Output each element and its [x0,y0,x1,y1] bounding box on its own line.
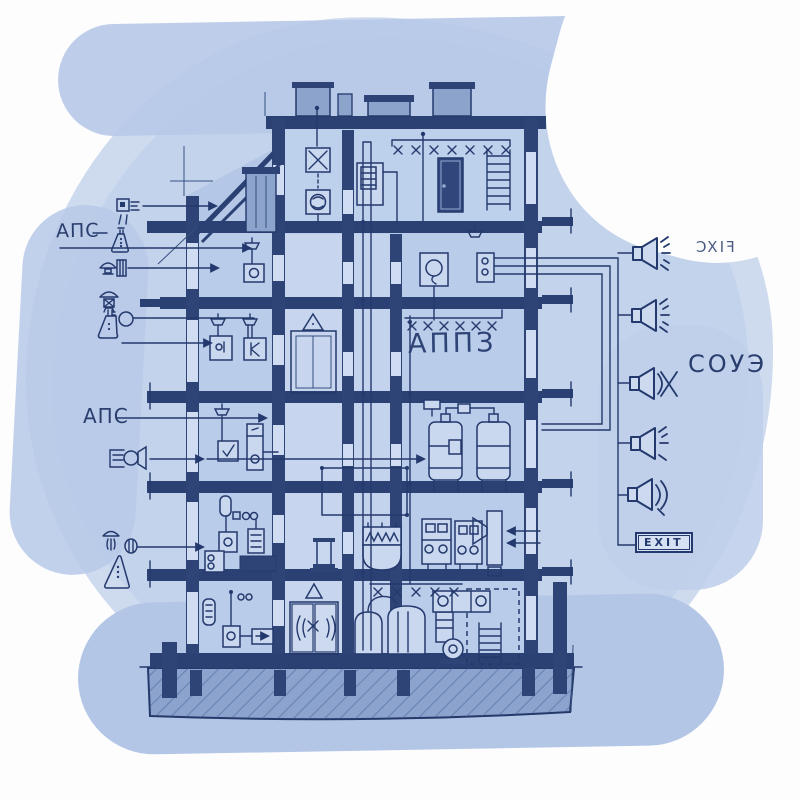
loudspeaker-rays-icon [631,427,668,460]
building-section-drawing [0,0,800,800]
label-appz: АППЗ [408,327,497,360]
loudspeaker-rays-icon [632,299,669,332]
roof-and-chimneys [265,82,475,116]
exit-sign: EXIT [635,532,693,553]
legend-icons [98,199,146,588]
water-tank [429,414,462,492]
door [438,158,463,212]
horn-sounder-icon [110,447,146,469]
coil-tank [363,523,401,570]
loudspeaker-crossed-waves-icon [630,368,677,399]
speakers [628,237,677,515]
label-aps-upper: АПС [56,220,100,243]
gauge-panel [433,591,490,612]
hydrant-mushroom-icon [100,260,126,276]
water-tank [477,414,510,492]
control-panel [422,519,451,570]
label-fix-mirrored: FIXC [694,238,735,256]
sprinkler-spray-icon [103,532,137,554]
blueprint-canvas: АПС АПС АППЗ FIXC СОУЭ EXIT [0,0,800,800]
label-aps-lower: АПС [83,404,129,428]
loudspeaker-rays-icon [633,237,670,270]
exit-sign-text: EXIT [638,535,690,550]
sounder-box [420,253,448,286]
warning-triangle-icon [105,556,130,588]
ceiling-lamp-icon [100,292,118,312]
loudspeaker-waves-icon [628,479,667,515]
label-souye: СОУЭ [688,350,767,378]
control-panel [455,521,482,570]
smoke-detector-icon [117,199,139,224]
